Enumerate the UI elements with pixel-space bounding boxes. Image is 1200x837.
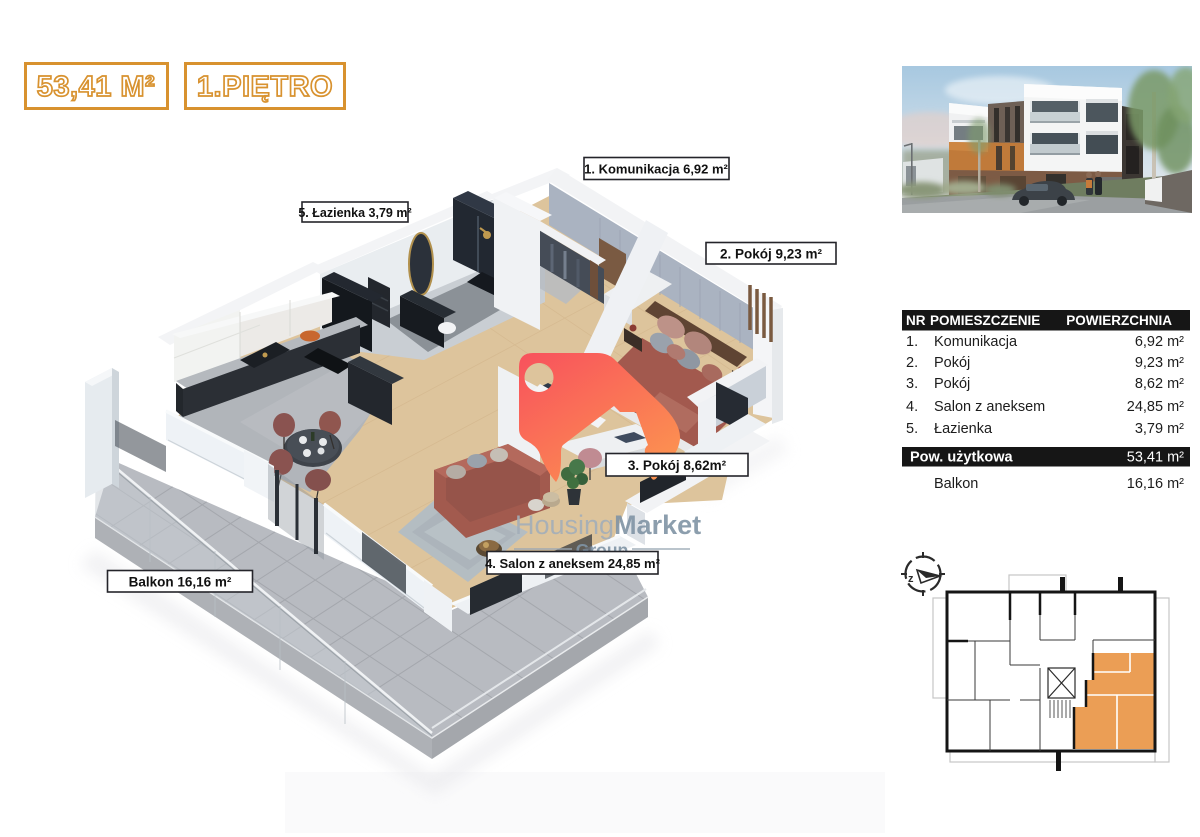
svg-text:53,41 M²: 53,41 M² — [37, 71, 155, 103]
svg-text:Łazienka: Łazienka — [934, 421, 993, 437]
svg-text:Salon z aneksem: Salon z aneksem — [934, 399, 1045, 415]
svg-text:3,79 m²: 3,79 m² — [1135, 421, 1184, 437]
svg-text:2. Pokój 9,23 m²: 2. Pokój 9,23 m² — [720, 247, 823, 262]
svg-text:Balkon: Balkon — [934, 476, 978, 492]
svg-text:Pokój: Pokój — [934, 355, 970, 371]
svg-text:Komunikacja: Komunikacja — [934, 334, 1018, 350]
svg-text:1.PIĘTRO: 1.PIĘTRO — [197, 71, 333, 103]
svg-text:24,85 m²: 24,85 m² — [1127, 399, 1184, 415]
svg-text:1. Komunikacja 6,92 m²: 1. Komunikacja 6,92 m² — [584, 162, 728, 177]
svg-text:Balkon 16,16 m²: Balkon 16,16 m² — [129, 575, 232, 590]
svg-text:6,92 m²: 6,92 m² — [1135, 334, 1184, 350]
svg-text:16,16 m²: 16,16 m² — [1127, 476, 1184, 492]
svg-text:1.: 1. — [906, 334, 918, 350]
svg-text:9,23 m²: 9,23 m² — [1135, 355, 1184, 371]
svg-text:NR: NR — [906, 313, 926, 328]
svg-text:4. Salon z aneksem 24,85 m²: 4. Salon z aneksem 24,85 m² — [485, 556, 661, 571]
svg-text:53,41 m²: 53,41 m² — [1127, 450, 1184, 466]
svg-text:5.: 5. — [906, 421, 918, 437]
svg-text:Pow. użytkowa: Pow. użytkowa — [910, 450, 1014, 466]
svg-text:3.: 3. — [906, 376, 918, 392]
svg-text:POWIERZCHNIA: POWIERZCHNIA — [1066, 313, 1172, 328]
svg-text:2.: 2. — [906, 355, 918, 371]
svg-text:POMIESZCZENIE: POMIESZCZENIE — [930, 313, 1040, 328]
svg-text:5. Łazienka 3,79 m²: 5. Łazienka 3,79 m² — [298, 206, 411, 220]
svg-text:3. Pokój 8,62m²: 3. Pokój 8,62m² — [628, 458, 727, 473]
svg-text:z: z — [908, 573, 914, 585]
svg-text:Pokój: Pokój — [934, 376, 970, 392]
svg-text:HousingMarket: HousingMarket — [515, 510, 701, 540]
svg-text:4.: 4. — [906, 399, 918, 415]
svg-text:8,62 m²: 8,62 m² — [1135, 376, 1184, 392]
